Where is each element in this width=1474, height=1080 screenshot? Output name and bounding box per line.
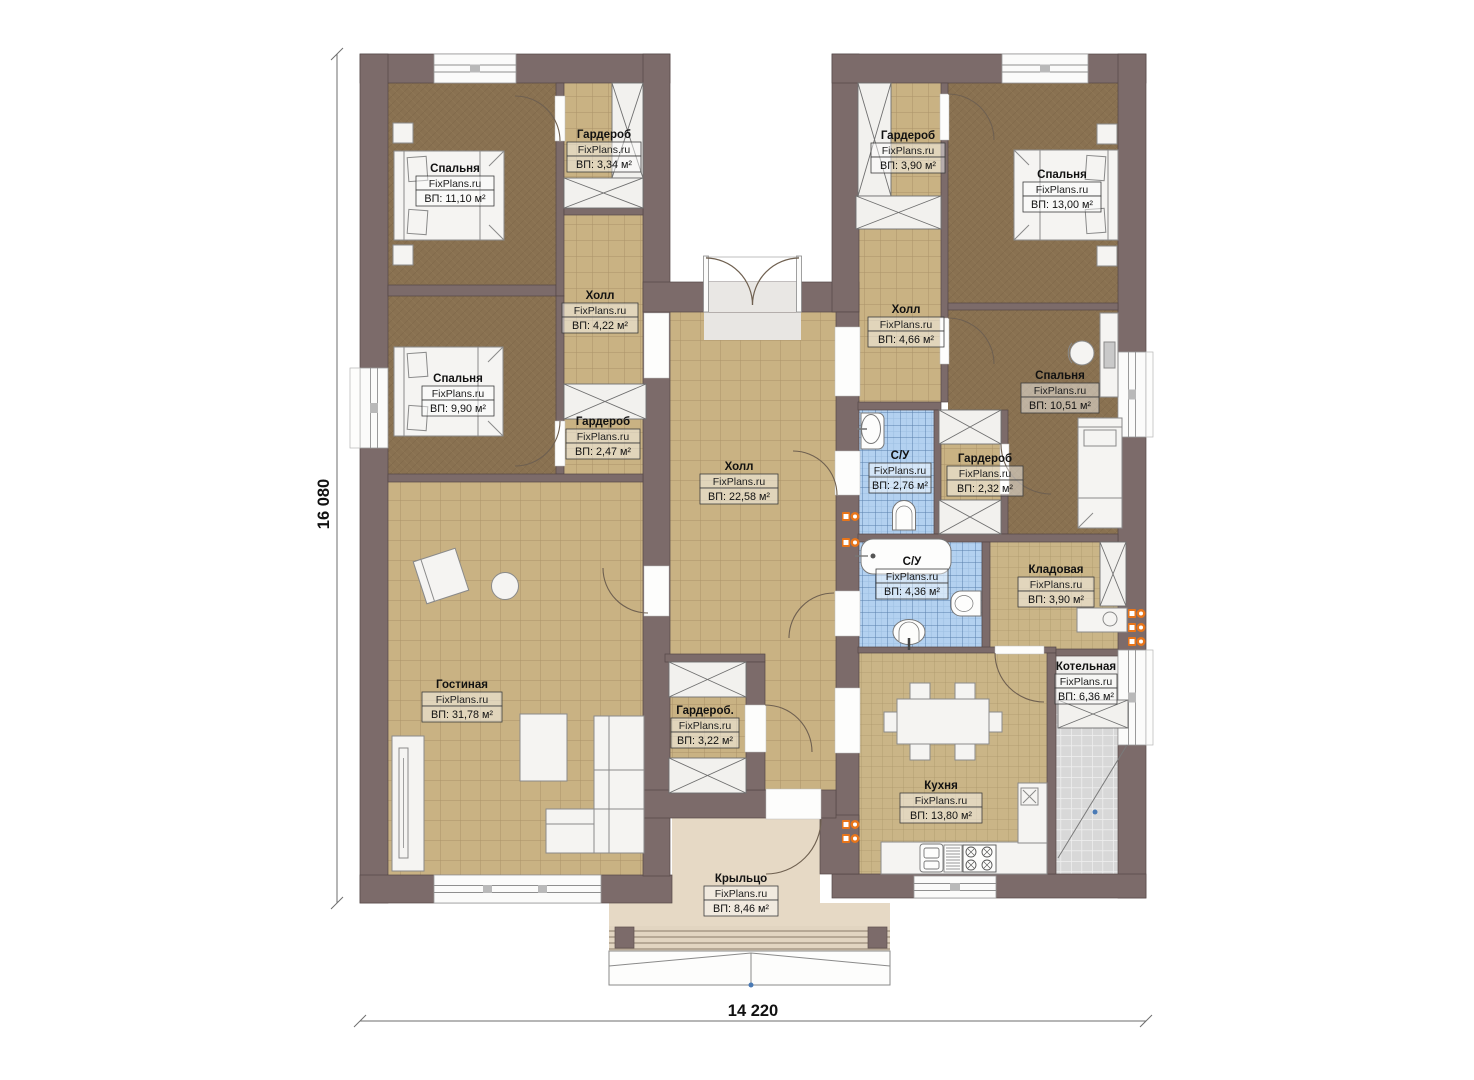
svg-text:ВП: 4,36 м²: ВП: 4,36 м² bbox=[884, 586, 940, 598]
svg-text:ВП: 22,58 м²: ВП: 22,58 м² bbox=[708, 491, 770, 503]
svg-text:Котельная: Котельная bbox=[1056, 661, 1116, 673]
svg-text:ВП: 4,66 м²: ВП: 4,66 м² bbox=[878, 334, 934, 346]
svg-text:FixPlans.ru: FixPlans.ru bbox=[713, 476, 766, 488]
svg-text:Кухня: Кухня bbox=[924, 780, 958, 792]
svg-text:Гардероб: Гардероб bbox=[881, 130, 935, 142]
svg-text:ВП: 3,90 м²: ВП: 3,90 м² bbox=[1028, 594, 1084, 606]
svg-text:FixPlans.ru: FixPlans.ru bbox=[1030, 579, 1083, 591]
svg-text:FixPlans.ru: FixPlans.ru bbox=[1034, 385, 1087, 397]
svg-text:Спальня: Спальня bbox=[430, 163, 480, 175]
svg-text:Крыльцо: Крыльцо bbox=[715, 873, 767, 885]
svg-text:FixPlans.ru: FixPlans.ru bbox=[880, 319, 933, 331]
svg-text:Спальня: Спальня bbox=[433, 373, 483, 385]
svg-text:ВП: 3,34 м²: ВП: 3,34 м² bbox=[576, 159, 632, 171]
svg-text:ВП: 13,00 м²: ВП: 13,00 м² bbox=[1031, 199, 1093, 211]
svg-text:FixPlans.ru: FixPlans.ru bbox=[574, 305, 627, 317]
svg-text:FixPlans.ru: FixPlans.ru bbox=[715, 888, 768, 900]
svg-text:Спальня: Спальня bbox=[1037, 169, 1087, 181]
svg-text:ВП: 6,36 м²: ВП: 6,36 м² bbox=[1058, 691, 1114, 703]
svg-text:ВП: 2,47 м²: ВП: 2,47 м² bbox=[575, 446, 631, 458]
svg-text:ВП: 4,22 м²: ВП: 4,22 м² bbox=[572, 320, 628, 332]
svg-text:Гардероб: Гардероб bbox=[577, 129, 631, 141]
svg-text:Холл: Холл bbox=[725, 461, 754, 473]
svg-text:ВП: 31,78 м²: ВП: 31,78 м² bbox=[431, 709, 493, 721]
svg-text:ВП: 9,90 м²: ВП: 9,90 м² bbox=[430, 403, 486, 415]
svg-text:Кладовая: Кладовая bbox=[1028, 564, 1083, 576]
svg-text:ВП: 11,10 м²: ВП: 11,10 м² bbox=[424, 193, 486, 205]
svg-text:ВП: 13,80 м²: ВП: 13,80 м² bbox=[910, 810, 972, 822]
svg-text:FixPlans.ru: FixPlans.ru bbox=[886, 571, 939, 583]
svg-text:ВП: 10,51 м²: ВП: 10,51 м² bbox=[1029, 400, 1091, 412]
svg-text:FixPlans.ru: FixPlans.ru bbox=[679, 720, 732, 732]
svg-text:FixPlans.ru: FixPlans.ru bbox=[874, 465, 927, 477]
svg-text:FixPlans.ru: FixPlans.ru bbox=[429, 178, 482, 190]
svg-text:FixPlans.ru: FixPlans.ru bbox=[915, 795, 968, 807]
svg-text:Холл: Холл bbox=[892, 304, 921, 316]
svg-text:FixPlans.ru: FixPlans.ru bbox=[882, 145, 935, 157]
svg-text:ВП: 8,46 м²: ВП: 8,46 м² bbox=[713, 903, 769, 915]
svg-text:FixPlans.ru: FixPlans.ru bbox=[959, 468, 1012, 480]
svg-text:ВП: 2,76 м²: ВП: 2,76 м² bbox=[872, 480, 928, 492]
svg-text:ВП: 2,32 м²: ВП: 2,32 м² bbox=[957, 483, 1013, 495]
svg-text:С/У: С/У bbox=[891, 450, 911, 462]
svg-text:Гардероб: Гардероб bbox=[958, 453, 1012, 465]
svg-text:FixPlans.ru: FixPlans.ru bbox=[578, 144, 631, 156]
svg-text:С/У: С/У bbox=[903, 556, 923, 568]
svg-text:FixPlans.ru: FixPlans.ru bbox=[1060, 676, 1113, 688]
svg-text:16 080: 16 080 bbox=[315, 479, 333, 529]
svg-text:FixPlans.ru: FixPlans.ru bbox=[1036, 184, 1089, 196]
svg-text:Гостиная: Гостиная bbox=[436, 679, 488, 691]
svg-text:Гардероб.: Гардероб. bbox=[676, 705, 734, 717]
svg-text:Холл: Холл bbox=[586, 290, 615, 302]
svg-text:14 220: 14 220 bbox=[728, 1002, 778, 1020]
svg-text:ВП: 3,90 м²: ВП: 3,90 м² bbox=[880, 160, 936, 172]
svg-text:ВП: 3,22 м²: ВП: 3,22 м² bbox=[677, 735, 733, 747]
svg-text:FixPlans.ru: FixPlans.ru bbox=[432, 388, 485, 400]
svg-text:FixPlans.ru: FixPlans.ru bbox=[577, 431, 630, 443]
svg-text:FixPlans.ru: FixPlans.ru bbox=[436, 694, 489, 706]
svg-text:Спальня: Спальня bbox=[1035, 370, 1085, 382]
svg-text:Гардероб: Гардероб bbox=[576, 416, 630, 428]
